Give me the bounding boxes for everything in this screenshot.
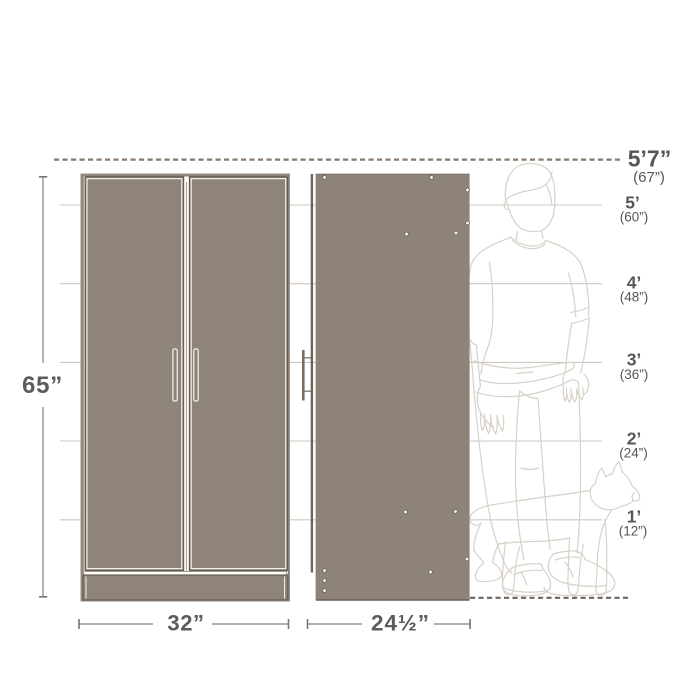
svg-text:32”: 32” xyxy=(167,611,204,636)
svg-text:(24”): (24”) xyxy=(619,446,648,461)
svg-text:24½”: 24½” xyxy=(371,611,430,636)
svg-text:65”: 65” xyxy=(22,372,63,399)
svg-text:(48”): (48”) xyxy=(620,290,649,305)
svg-text:(67”): (67”) xyxy=(633,169,665,186)
svg-text:(60”): (60”) xyxy=(620,210,649,225)
svg-text:(12”): (12”) xyxy=(619,524,648,539)
svg-text:5’7”: 5’7” xyxy=(628,146,671,172)
svg-text:(36”): (36”) xyxy=(620,367,649,382)
